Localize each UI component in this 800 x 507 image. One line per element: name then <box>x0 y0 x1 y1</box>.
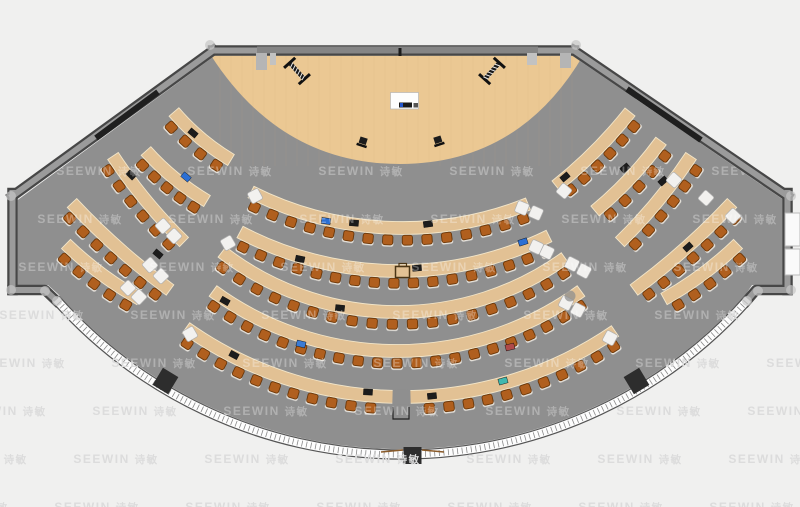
svg-text:SEEWIN 诗敏: SEEWIN 诗敏 <box>578 500 663 507</box>
svg-text:SEEWIN 诗敏: SEEWIN 诗敏 <box>299 212 384 226</box>
svg-text:SEEWIN 诗敏: SEEWIN 诗敏 <box>73 452 158 466</box>
svg-text:SEEWIN 诗敏: SEEWIN 诗敏 <box>149 260 234 274</box>
svg-text:SEEWIN 诗敏: SEEWIN 诗敏 <box>316 500 401 507</box>
svg-text:SEEWIN 诗敏: SEEWIN 诗敏 <box>449 164 534 178</box>
svg-text:SEEWIN 诗敏: SEEWIN 诗敏 <box>430 212 515 226</box>
svg-text:SEEWIN 诗敏: SEEWIN 诗敏 <box>54 500 139 507</box>
svg-text:SEEWIN 诗敏: SEEWIN 诗敏 <box>223 404 308 418</box>
svg-text:SEEWIN 诗敏: SEEWIN 诗敏 <box>523 308 608 322</box>
svg-text:SEEWIN 诗敏: SEEWIN 诗敏 <box>447 500 532 507</box>
svg-text:SEEWIN 诗敏: SEEWIN 诗敏 <box>37 212 122 226</box>
svg-text:SEEWIN 诗敏: SEEWIN 诗敏 <box>204 452 289 466</box>
svg-text:SEEWIN 诗敏: SEEWIN 诗敏 <box>597 452 682 466</box>
svg-text:SEEWIN 诗敏: SEEWIN 诗敏 <box>580 164 665 178</box>
svg-text:SEEWIN 诗敏: SEEWIN 诗敏 <box>373 356 458 370</box>
svg-text:SEEWIN 诗敏: SEEWIN 诗敏 <box>692 212 777 226</box>
svg-text:SEEWIN 诗敏: SEEWIN 诗敏 <box>261 308 346 322</box>
svg-text:SEEWIN 诗敏: SEEWIN 诗敏 <box>187 164 272 178</box>
svg-text:SEEWIN 诗敏: SEEWIN 诗敏 <box>18 260 103 274</box>
svg-text:SEEWIN 诗敏: SEEWIN 诗敏 <box>0 356 66 370</box>
svg-text:SEEWIN 诗敏: SEEWIN 诗敏 <box>485 404 570 418</box>
svg-text:SEEWIN 诗敏: SEEWIN 诗敏 <box>411 260 496 274</box>
svg-text:SEEWIN 诗敏: SEEWIN 诗敏 <box>0 500 9 507</box>
svg-text:SEEWIN 诗敏: SEEWIN 诗敏 <box>92 404 177 418</box>
svg-text:SEEWIN 诗敏: SEEWIN 诗敏 <box>747 404 800 418</box>
svg-text:SEEWIN 诗敏: SEEWIN 诗敏 <box>709 500 794 507</box>
svg-text:SEEWIN 诗敏: SEEWIN 诗敏 <box>766 356 800 370</box>
svg-text:SEEWIN 诗敏: SEEWIN 诗敏 <box>466 452 551 466</box>
svg-text:SEEWIN 诗敏: SEEWIN 诗敏 <box>318 164 403 178</box>
svg-text:SEEWIN 诗敏: SEEWIN 诗敏 <box>616 404 701 418</box>
svg-text:SEEWIN 诗敏: SEEWIN 诗敏 <box>0 308 85 322</box>
svg-text:SEEWIN 诗敏: SEEWIN 诗敏 <box>0 404 47 418</box>
svg-text:SEEWIN 诗敏: SEEWIN 诗敏 <box>56 164 141 178</box>
svg-text:SEEWIN 诗敏: SEEWIN 诗敏 <box>168 212 253 226</box>
svg-text:SEEWIN 诗敏: SEEWIN 诗敏 <box>504 356 589 370</box>
svg-text:SEEWIN 诗敏: SEEWIN 诗敏 <box>280 260 365 274</box>
svg-text:SEEWIN 诗敏: SEEWIN 诗敏 <box>335 452 420 466</box>
svg-text:SEEWIN 诗敏: SEEWIN 诗敏 <box>392 308 477 322</box>
svg-text:SEEWIN 诗敏: SEEWIN 诗敏 <box>0 452 28 466</box>
svg-text:SEEWIN 诗敏: SEEWIN 诗敏 <box>185 500 270 507</box>
svg-text:SEEWIN 诗敏: SEEWIN 诗敏 <box>242 356 327 370</box>
svg-text:SEEWIN 诗敏: SEEWIN 诗敏 <box>542 260 627 274</box>
svg-text:SEEWIN 诗敏: SEEWIN 诗敏 <box>561 212 646 226</box>
svg-text:SEEWIN 诗敏: SEEWIN 诗敏 <box>673 260 758 274</box>
svg-text:SEEWIN 诗敏: SEEWIN 诗敏 <box>728 452 800 466</box>
svg-text:SEEWIN 诗敏: SEEWIN 诗敏 <box>130 308 215 322</box>
svg-text:SEEWIN 诗敏: SEEWIN 诗敏 <box>354 404 439 418</box>
